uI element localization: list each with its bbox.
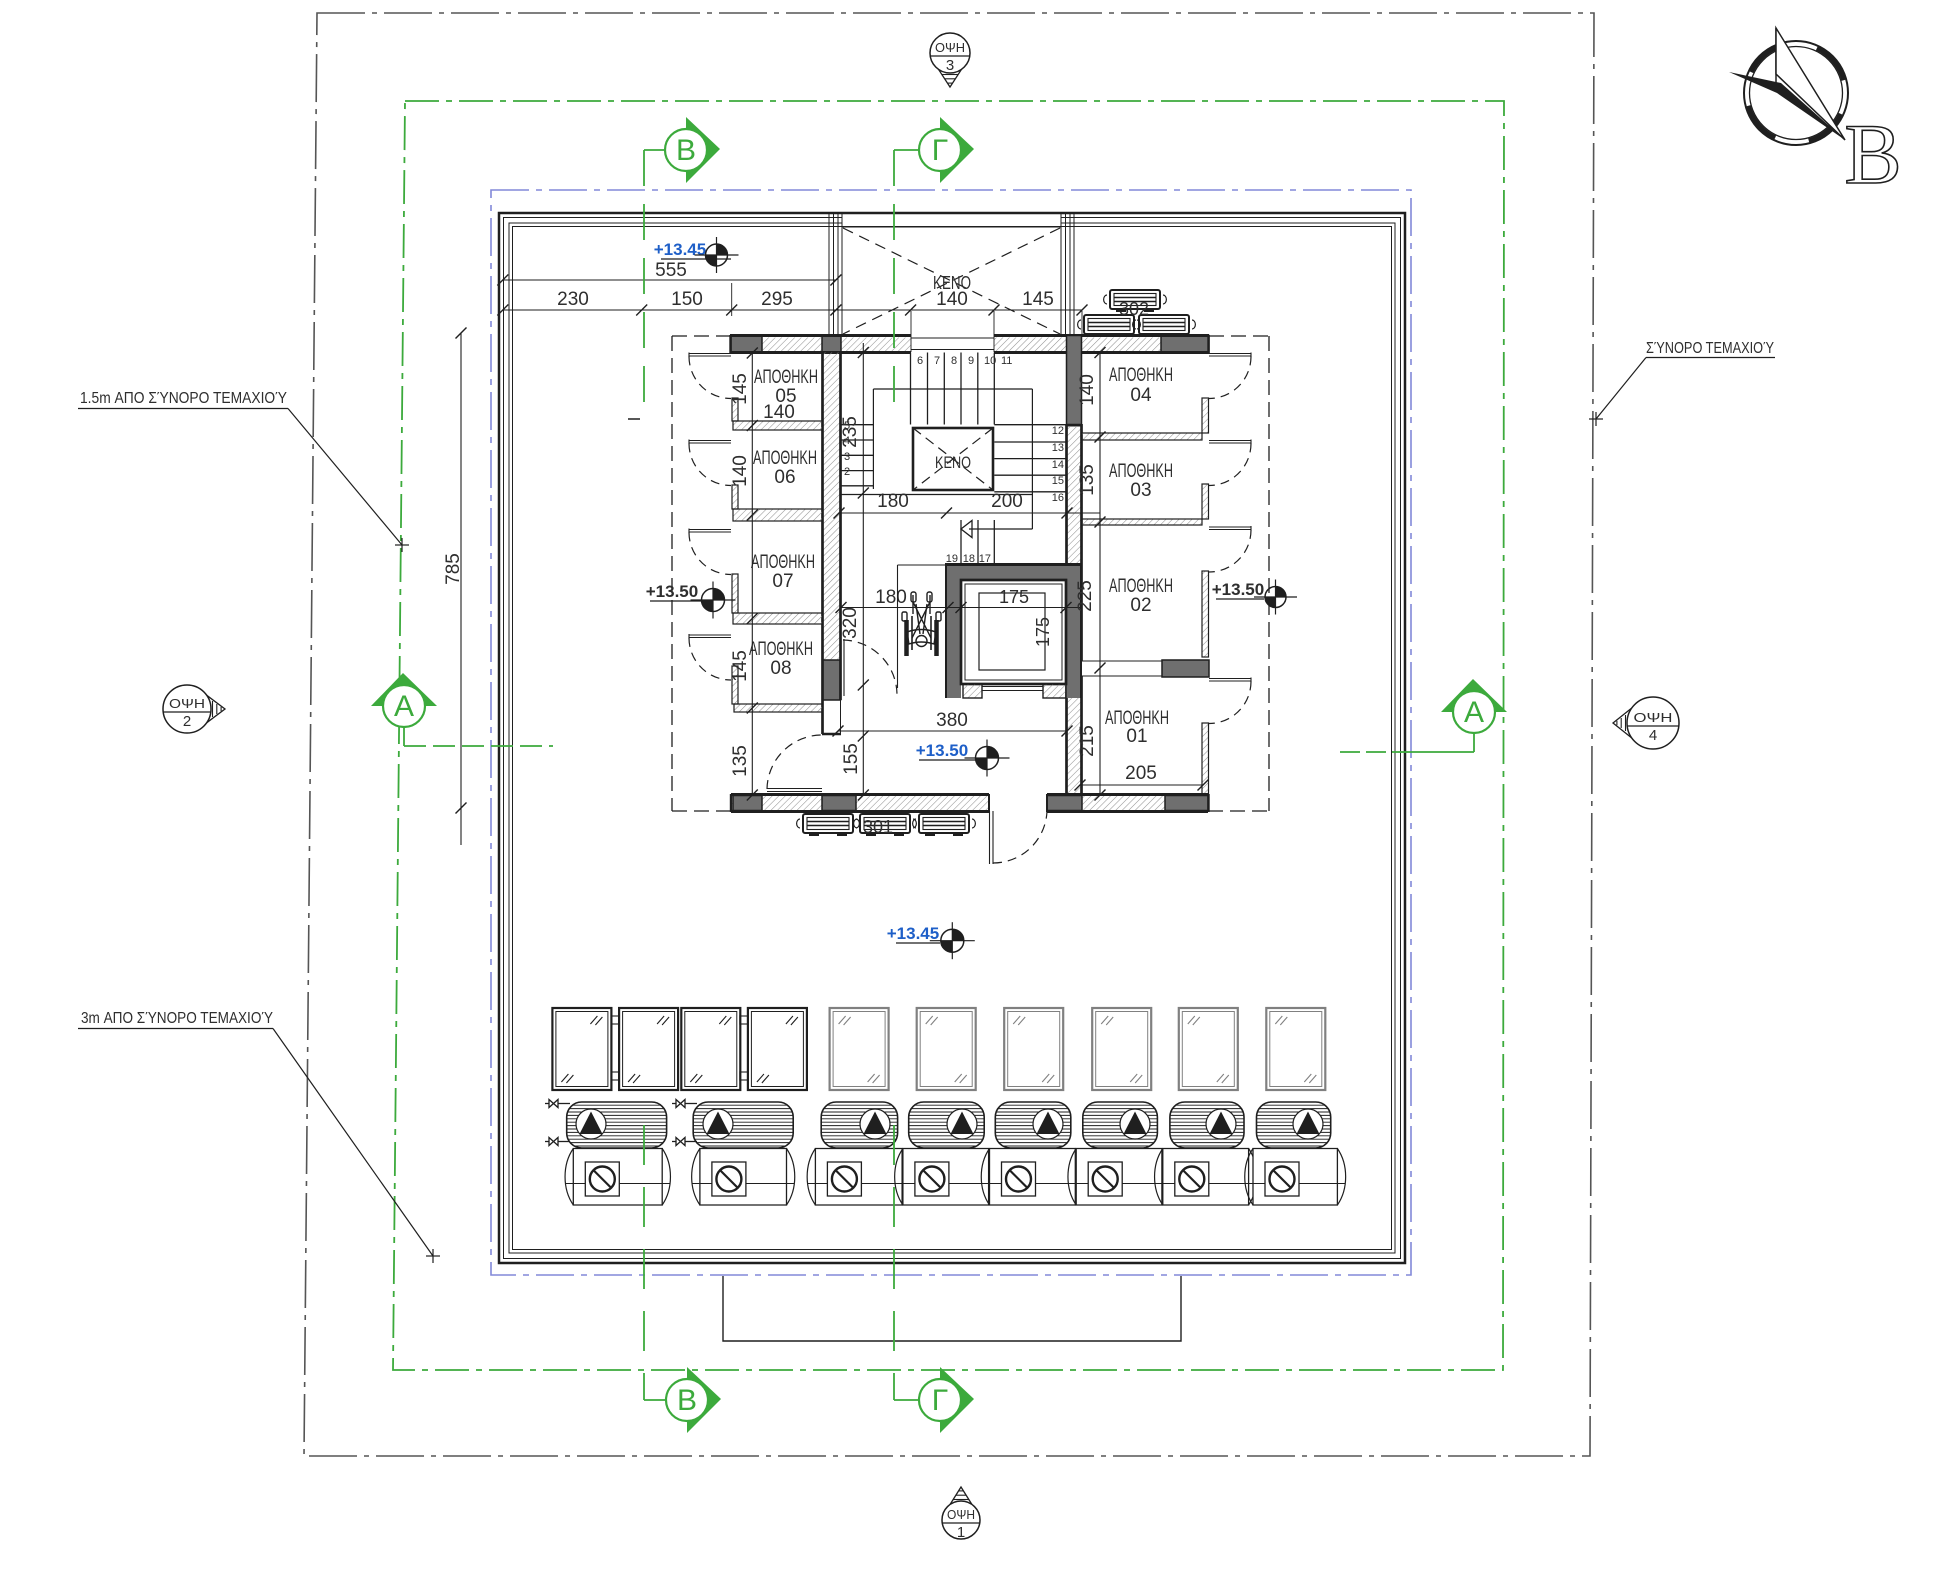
svg-text:ΑΠΟΘΗΚΗ: ΑΠΟΘΗΚΗ: [753, 448, 817, 469]
svg-text:3: 3: [946, 57, 954, 74]
svg-text:ΑΠΟΘΗΚΗ: ΑΠΟΘΗΚΗ: [751, 552, 815, 573]
svg-text:ΟΨΗ: ΟΨΗ: [947, 1507, 975, 1522]
svg-text:555: 555: [655, 260, 687, 281]
svg-text:ΣΎΝΟΡΟ ΤΕΜΑΧΙΟΎ: ΣΎΝΟΡΟ ΤΕΜΑΧΙΟΎ: [1646, 340, 1774, 357]
svg-text:B: B: [1844, 106, 1901, 202]
svg-text:04: 04: [1130, 385, 1152, 406]
svg-text:180: 180: [877, 491, 909, 512]
svg-text:ΟΨΗ: ΟΨΗ: [935, 40, 965, 55]
svg-text:1: 1: [957, 1524, 965, 1541]
svg-text:175: 175: [999, 587, 1029, 607]
svg-text:Β: Β: [677, 1384, 697, 1417]
svg-text:230: 230: [557, 289, 589, 310]
svg-text:225: 225: [1075, 580, 1096, 612]
svg-text:145: 145: [730, 650, 751, 682]
svg-text:301: 301: [863, 817, 893, 837]
svg-text:302: 302: [1119, 299, 1149, 319]
svg-text:3: 3: [844, 451, 850, 463]
svg-text:+13.50: +13.50: [1212, 580, 1264, 599]
svg-text:+13.45: +13.45: [654, 240, 706, 259]
svg-text:180: 180: [875, 587, 907, 608]
svg-text:08: 08: [770, 658, 791, 679]
svg-text:07: 07: [772, 571, 793, 592]
svg-text:ΑΠΟΘΗΚΗ: ΑΠΟΘΗΚΗ: [1109, 576, 1173, 597]
svg-text:12: 12: [1052, 425, 1064, 437]
svg-text:140: 140: [936, 289, 968, 310]
svg-text:ΑΠΟΘΗΚΗ: ΑΠΟΘΗΚΗ: [749, 639, 813, 660]
svg-text:4: 4: [1649, 727, 1657, 744]
svg-text:16: 16: [1052, 492, 1064, 504]
svg-text:10: 10: [984, 355, 996, 367]
svg-text:140: 140: [730, 455, 751, 487]
svg-text:02: 02: [1130, 595, 1151, 616]
svg-text:9: 9: [968, 355, 974, 367]
svg-text:06: 06: [774, 467, 795, 488]
svg-text:ΑΠΟΘΗΚΗ: ΑΠΟΘΗΚΗ: [1109, 365, 1173, 386]
svg-text:135: 135: [1077, 464, 1098, 496]
svg-text:2: 2: [844, 466, 850, 478]
svg-text:Γ: Γ: [932, 134, 949, 167]
svg-text:3m ΑΠΟ ΣΎΝΟΡΟ ΤΕΜΑΧΙΟΎ: 3m ΑΠΟ ΣΎΝΟΡΟ ΤΕΜΑΧΙΟΎ: [81, 1010, 273, 1027]
svg-text:140: 140: [1077, 374, 1098, 406]
svg-text:+13.50: +13.50: [646, 582, 698, 601]
svg-text:380: 380: [936, 710, 968, 731]
svg-text:03: 03: [1130, 480, 1151, 501]
svg-text:11: 11: [1001, 355, 1012, 367]
svg-text:145: 145: [730, 373, 751, 405]
svg-text:145: 145: [1022, 289, 1054, 310]
svg-text:205: 205: [1125, 763, 1157, 784]
svg-text:+13.50: +13.50: [916, 741, 968, 760]
svg-text:155: 155: [841, 743, 862, 775]
svg-text:14: 14: [1052, 459, 1064, 471]
svg-text:8: 8: [951, 355, 957, 367]
svg-text:ΟΨΗ: ΟΨΗ: [1634, 710, 1673, 725]
svg-text:175: 175: [1033, 617, 1053, 647]
svg-text:785: 785: [443, 553, 464, 585]
svg-text:Γ: Γ: [932, 1384, 949, 1417]
svg-text:215: 215: [1077, 725, 1098, 757]
svg-text:6: 6: [917, 355, 923, 367]
svg-text:ΟΨΗ: ΟΨΗ: [169, 696, 205, 711]
svg-text:295: 295: [761, 289, 793, 310]
svg-text:7: 7: [934, 355, 940, 367]
svg-text:320: 320: [840, 607, 861, 639]
svg-text:150: 150: [671, 289, 703, 310]
svg-text:Α: Α: [394, 690, 414, 723]
svg-text:Β: Β: [676, 134, 696, 167]
svg-text:Α: Α: [1464, 696, 1484, 729]
svg-text:140: 140: [763, 402, 795, 423]
svg-text:2: 2: [183, 713, 191, 730]
svg-text:ΑΠΟΘΗΚΗ: ΑΠΟΘΗΚΗ: [754, 367, 818, 388]
svg-text:01: 01: [1126, 726, 1147, 747]
svg-text:ΑΠΟΘΗΚΗ: ΑΠΟΘΗΚΗ: [1109, 461, 1173, 482]
svg-text:135: 135: [730, 745, 751, 777]
svg-text:1.5m ΑΠΟ ΣΎΝΟΡΟ ΤΕΜΑΧΙΟΎ: 1.5m ΑΠΟ ΣΎΝΟΡΟ ΤΕΜΑΧΙΟΎ: [80, 390, 287, 407]
svg-text:ΚΕΝΟ: ΚΕΝΟ: [935, 453, 971, 472]
svg-text:235: 235: [840, 416, 861, 448]
svg-text:200: 200: [991, 491, 1023, 512]
svg-text:15: 15: [1052, 475, 1064, 487]
svg-text:13: 13: [1052, 442, 1064, 454]
